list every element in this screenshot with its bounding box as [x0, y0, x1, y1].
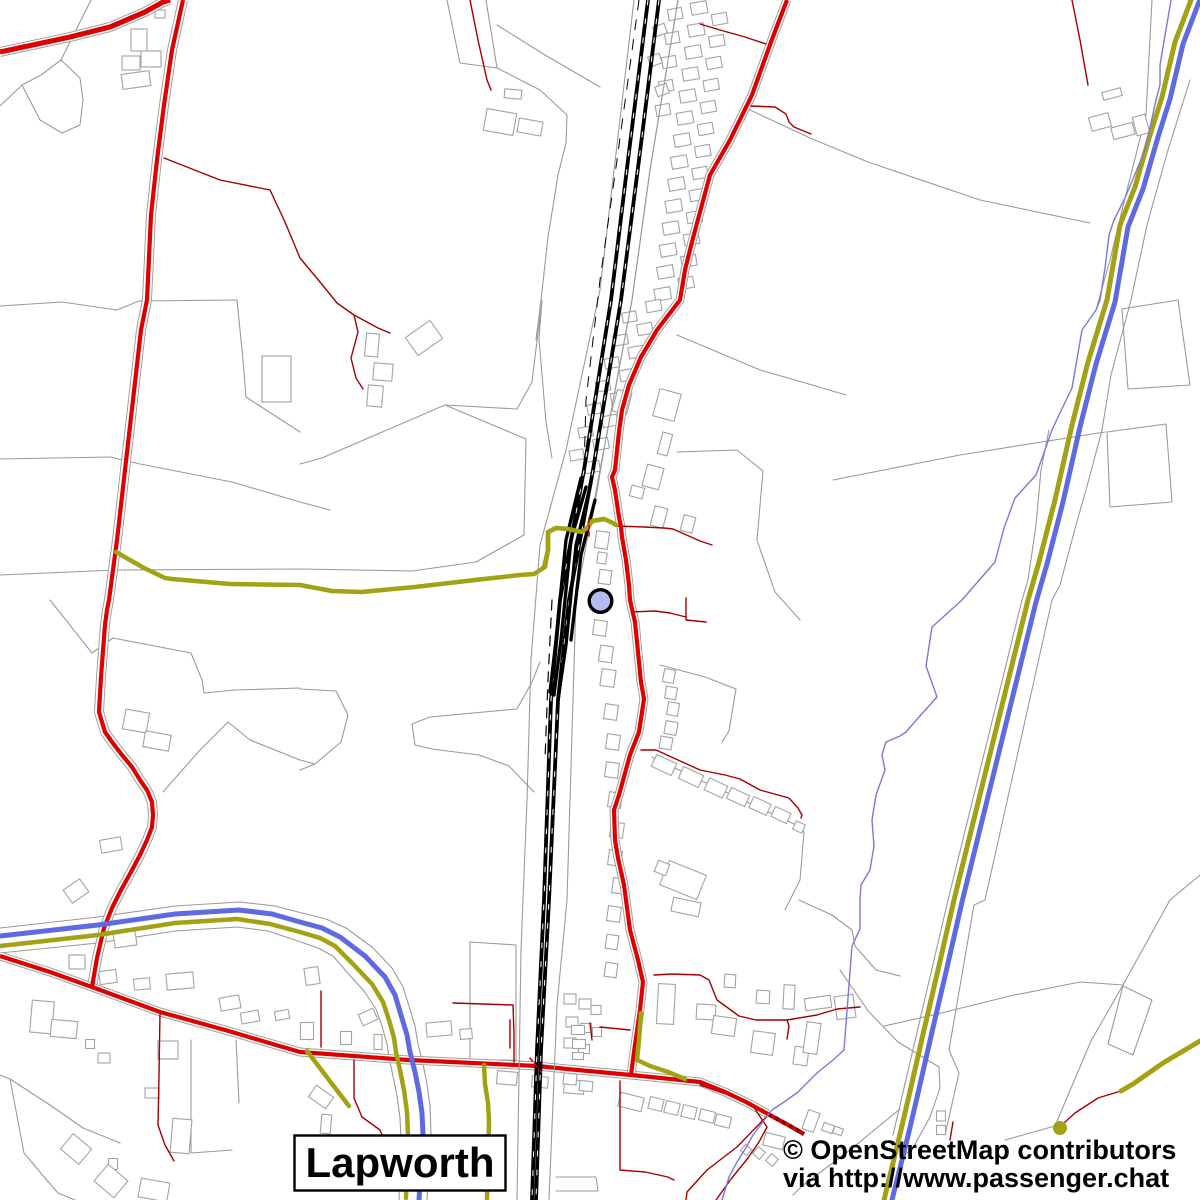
svg-text:via http://www.passenger.chat: via http://www.passenger.chat [783, 1163, 1169, 1193]
svg-text:© OpenStreetMap contributors: © OpenStreetMap contributors [783, 1135, 1176, 1165]
svg-text:Lapworth: Lapworth [306, 1139, 495, 1186]
